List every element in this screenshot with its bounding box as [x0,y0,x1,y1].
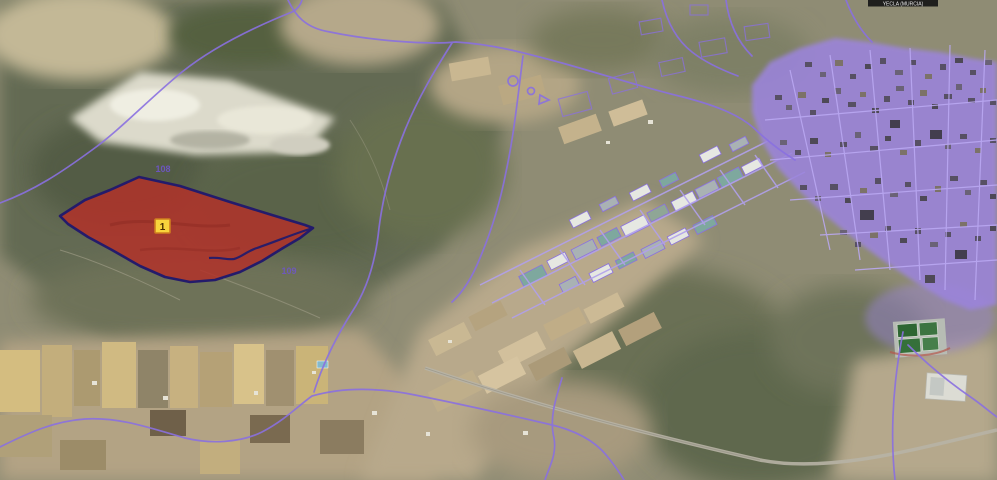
parcel-marker-number: 1 [160,222,166,233]
map-title-text: YECLA (MURCIA) [883,2,924,8]
map-title-bar: YECLA (MURCIA) [868,0,938,8]
satellite-map[interactable]: 1 108 109 YECLA (MURCIA) [0,0,997,480]
large-building [925,373,967,402]
satellite-map-viewport[interactable]: 1 108 109 YECLA (MURCIA) [0,0,997,480]
parcel-marker[interactable]: 1 [155,219,170,233]
polygon-label-108: 108 [155,164,170,174]
polygon-label-109: 109 [281,266,296,276]
